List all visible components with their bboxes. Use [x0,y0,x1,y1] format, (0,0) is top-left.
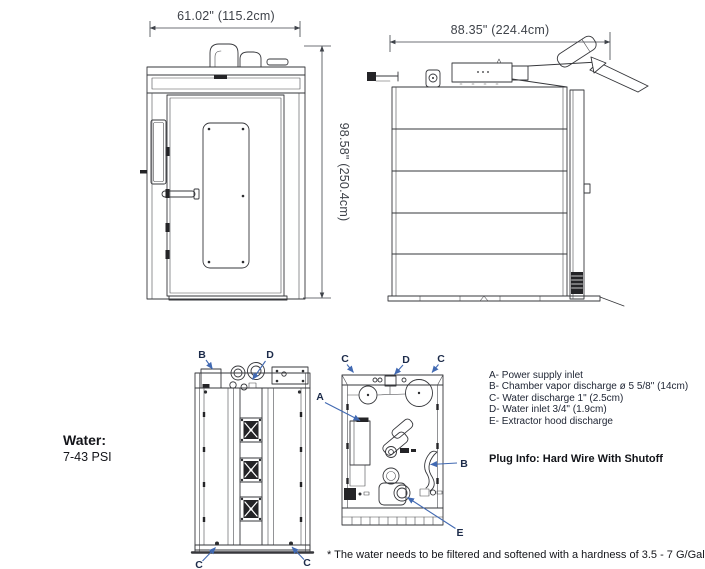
vent-grille [571,272,583,294]
front-view-drawing [140,44,305,300]
top-view-labels: C D C A B E [316,353,468,539]
legend-item-e: E- Extractor hood discharge [489,416,699,427]
side-view: 88.35" (224.4cm) [367,23,648,306]
front-width-dimension-text: 61.02" (115.2cm) [177,9,275,23]
top-label-c-right: C [437,353,445,365]
legend-item-a: A- Power supply inlet [489,370,699,381]
top-label-c-left: C [341,353,349,365]
water-spec-title: Water: [63,432,112,448]
back-label-c-right: C [303,557,311,569]
top-label-e: E [456,527,463,539]
back-label-b: B [198,349,206,361]
top-label-a: A [316,391,324,403]
side-width-dimension: 88.35" (224.4cm) [390,23,610,60]
side-width-dimension-text: 88.35" (224.4cm) [451,23,550,37]
water-spec-value: 7-43 PSI [63,450,112,464]
back-view: B D C C [192,349,313,569]
legend-item-b: B- Chamber vapor discharge ø 5 5/8" (14c… [489,381,699,392]
top-label-d: D [402,354,410,366]
side-view-drawing [367,34,648,306]
technical-drawing: 61.02" (115.2cm) 98.58" (250.4cm) [0,0,705,569]
water-footnote: * The water needs to be filtered and sof… [327,549,705,561]
top-view-drawing [342,375,443,525]
front-view: 61.02" (115.2cm) 98.58" (250.4cm) [140,9,351,300]
plug-info: Plug Info: Hard Wire With Shutoff [489,454,699,465]
front-height-dimension: 98.58" (250.4cm) [303,46,351,298]
legend-item-c: C- Water discharge 1" (2.5cm) [489,393,699,404]
fan-1 [240,418,262,442]
water-spec: Water: 7-43 PSI [63,432,112,464]
fan-3 [240,497,262,521]
fan-2 [240,458,262,482]
connection-legend: A- Power supply inlet B- Chamber vapor d… [489,370,699,465]
spec-sheet: 61.02" (115.2cm) 98.58" (250.4cm) [0,0,705,569]
front-width-dimension: 61.02" (115.2cm) [150,9,300,37]
back-view-labels: B D C C [195,349,311,569]
top-label-b: B [460,458,468,470]
back-label-d: D [266,349,274,361]
back-view-drawing [192,363,313,554]
front-height-dimension-text: 98.58" (250.4cm) [337,123,351,222]
legend-item-d: D- Water inlet 3/4" (1.9cm) [489,404,699,415]
back-label-c-left: C [195,559,203,569]
top-view: C D C A B E [316,353,468,539]
